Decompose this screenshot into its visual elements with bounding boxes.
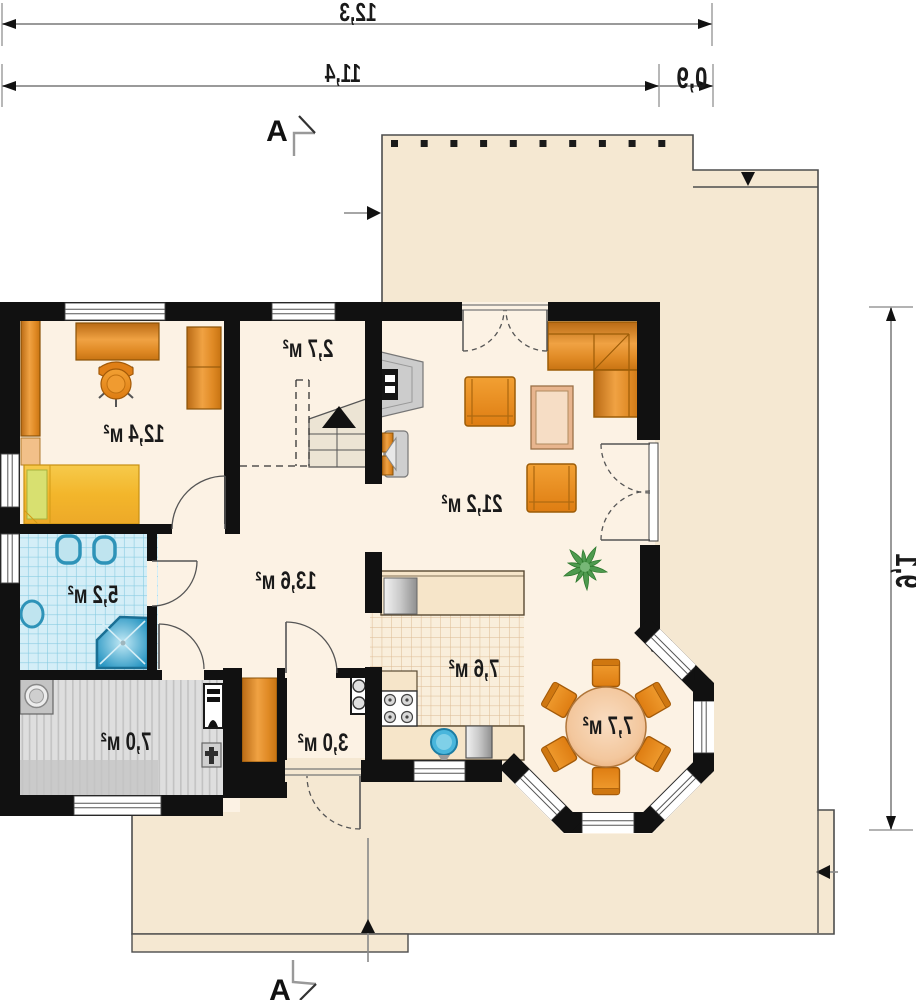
- svg-text:5,2 м²: 5,2 м²: [68, 580, 119, 608]
- svg-text:21,2 м²: 21,2 м²: [442, 489, 503, 517]
- svg-text:7,6 м²: 7,6 м²: [449, 654, 500, 682]
- svg-text:12,3: 12,3: [339, 0, 376, 27]
- svg-text:13,6 м²: 13,6 м²: [256, 566, 317, 594]
- svg-text:9,1: 9,1: [888, 554, 916, 589]
- svg-text:7,7 м²: 7,7 м²: [583, 711, 634, 739]
- svg-text:3,0 м²: 3,0 м²: [298, 728, 349, 756]
- svg-text:0,9: 0,9: [677, 61, 708, 95]
- svg-text:2,7 м²: 2,7 м²: [283, 334, 334, 362]
- svg-text:A: A: [269, 974, 291, 1000]
- svg-text:12,4 м²: 12,4 м²: [104, 419, 165, 447]
- svg-text:A: A: [266, 115, 288, 148]
- svg-text:11,4: 11,4: [325, 58, 362, 88]
- svg-text:7,0 м²: 7,0 м²: [101, 727, 152, 755]
